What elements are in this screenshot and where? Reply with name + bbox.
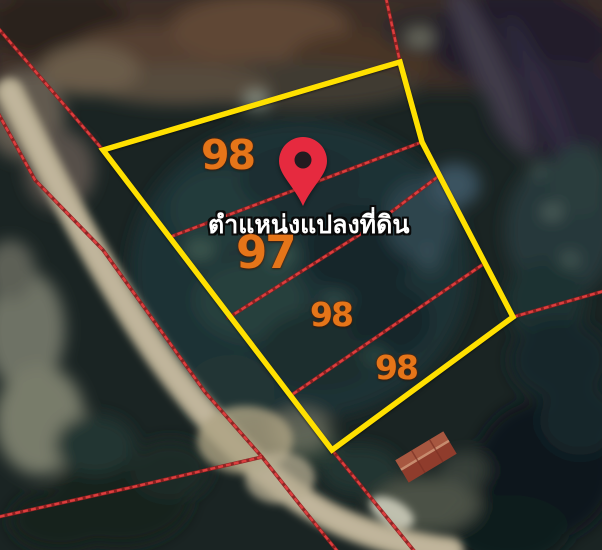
parcel-number-98-middle: 98 bbox=[310, 298, 352, 331]
satellite-imagery bbox=[0, 0, 602, 550]
satellite-map-viewport[interactable]: 98 ตำแหน่งแปลงที่ดิน 97 98 98 bbox=[0, 0, 602, 550]
parcel-number-97: 97 bbox=[236, 230, 295, 275]
parcel-number-98-bottom: 98 bbox=[375, 351, 417, 384]
parcel-number-98-top: 98 bbox=[201, 135, 254, 176]
